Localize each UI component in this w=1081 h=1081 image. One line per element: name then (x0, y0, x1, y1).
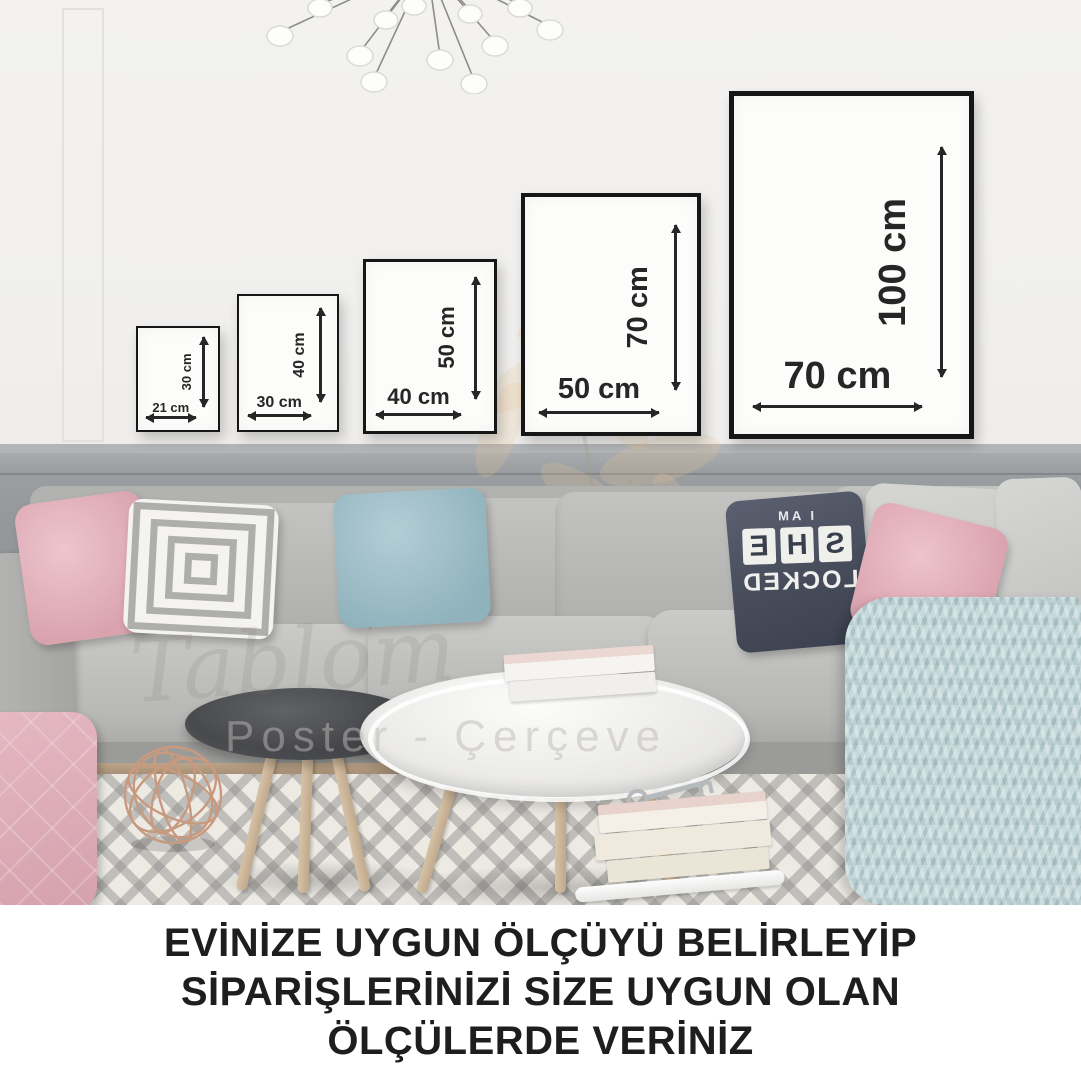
height-arrow (202, 337, 205, 406)
height-dimension-label: 50 cm (434, 277, 460, 399)
poster-frame-40x50: 40 cm 50 cm (363, 259, 497, 434)
caption-line-1: EVİNİZE UYGUN ÖLÇÜYÜ BELİRLEYİP (164, 919, 917, 968)
letter-tile: E (742, 528, 776, 565)
knit-throw-blanket (845, 597, 1081, 905)
pillow-text-top: I AM (775, 508, 814, 524)
height-arrow (674, 225, 677, 390)
letter-tile: H (780, 527, 814, 564)
height-dimension-label: 70 cm (622, 225, 655, 390)
books-on-floor (591, 778, 780, 903)
poster-frame-50x70: 50 cm 70 cm (521, 193, 701, 436)
height-dimension-label: 30 cm (179, 337, 194, 406)
chevron-x-pattern (123, 498, 280, 640)
caption-line-2: SİPARİŞLERİNİZİ SİZE UYGUN OLAN (181, 968, 900, 1017)
wall-pilaster-panel (62, 8, 104, 442)
poster-frame-70x100: 70 cm 100 cm (729, 91, 974, 439)
books-on-table (503, 645, 656, 705)
poster-frame-21x30: 21 cm 30 cm (136, 326, 220, 432)
height-arrow (940, 147, 943, 377)
blue-pillow (333, 487, 492, 629)
pillow-letter-tiles: S H E (742, 525, 852, 565)
width-arrow (753, 405, 922, 408)
pink-pouf (0, 712, 97, 912)
width-arrow (146, 416, 196, 419)
width-arrow (376, 413, 460, 416)
width-arrow (248, 414, 311, 417)
pillow-text-bottom: LOCKED (741, 565, 860, 598)
wire-sphere-decor (116, 740, 231, 855)
chandelier-branch-light (262, 0, 592, 94)
table-leg (555, 788, 566, 893)
geometric-pattern-pillow (123, 498, 280, 640)
poster-size-guide-image: 21 cm 30 cm 30 cm 40 cm 40 cm 50 cm 50 c… (0, 0, 1081, 1081)
caption-area: EVİNİZE UYGUN ÖLÇÜYÜ BELİRLEYİP SİPARİŞL… (0, 905, 1081, 1081)
height-arrow (319, 308, 322, 402)
caption-line-3: ÖLÇÜLERDE VERİNİZ (327, 1017, 753, 1066)
poster-frame-30x40: 30 cm 40 cm (237, 294, 339, 432)
height-dimension-label: 40 cm (291, 308, 309, 402)
letter-tile: S (818, 525, 852, 562)
height-arrow (474, 277, 477, 399)
height-dimension-label: 100 cm (872, 147, 915, 377)
width-arrow (539, 411, 659, 414)
